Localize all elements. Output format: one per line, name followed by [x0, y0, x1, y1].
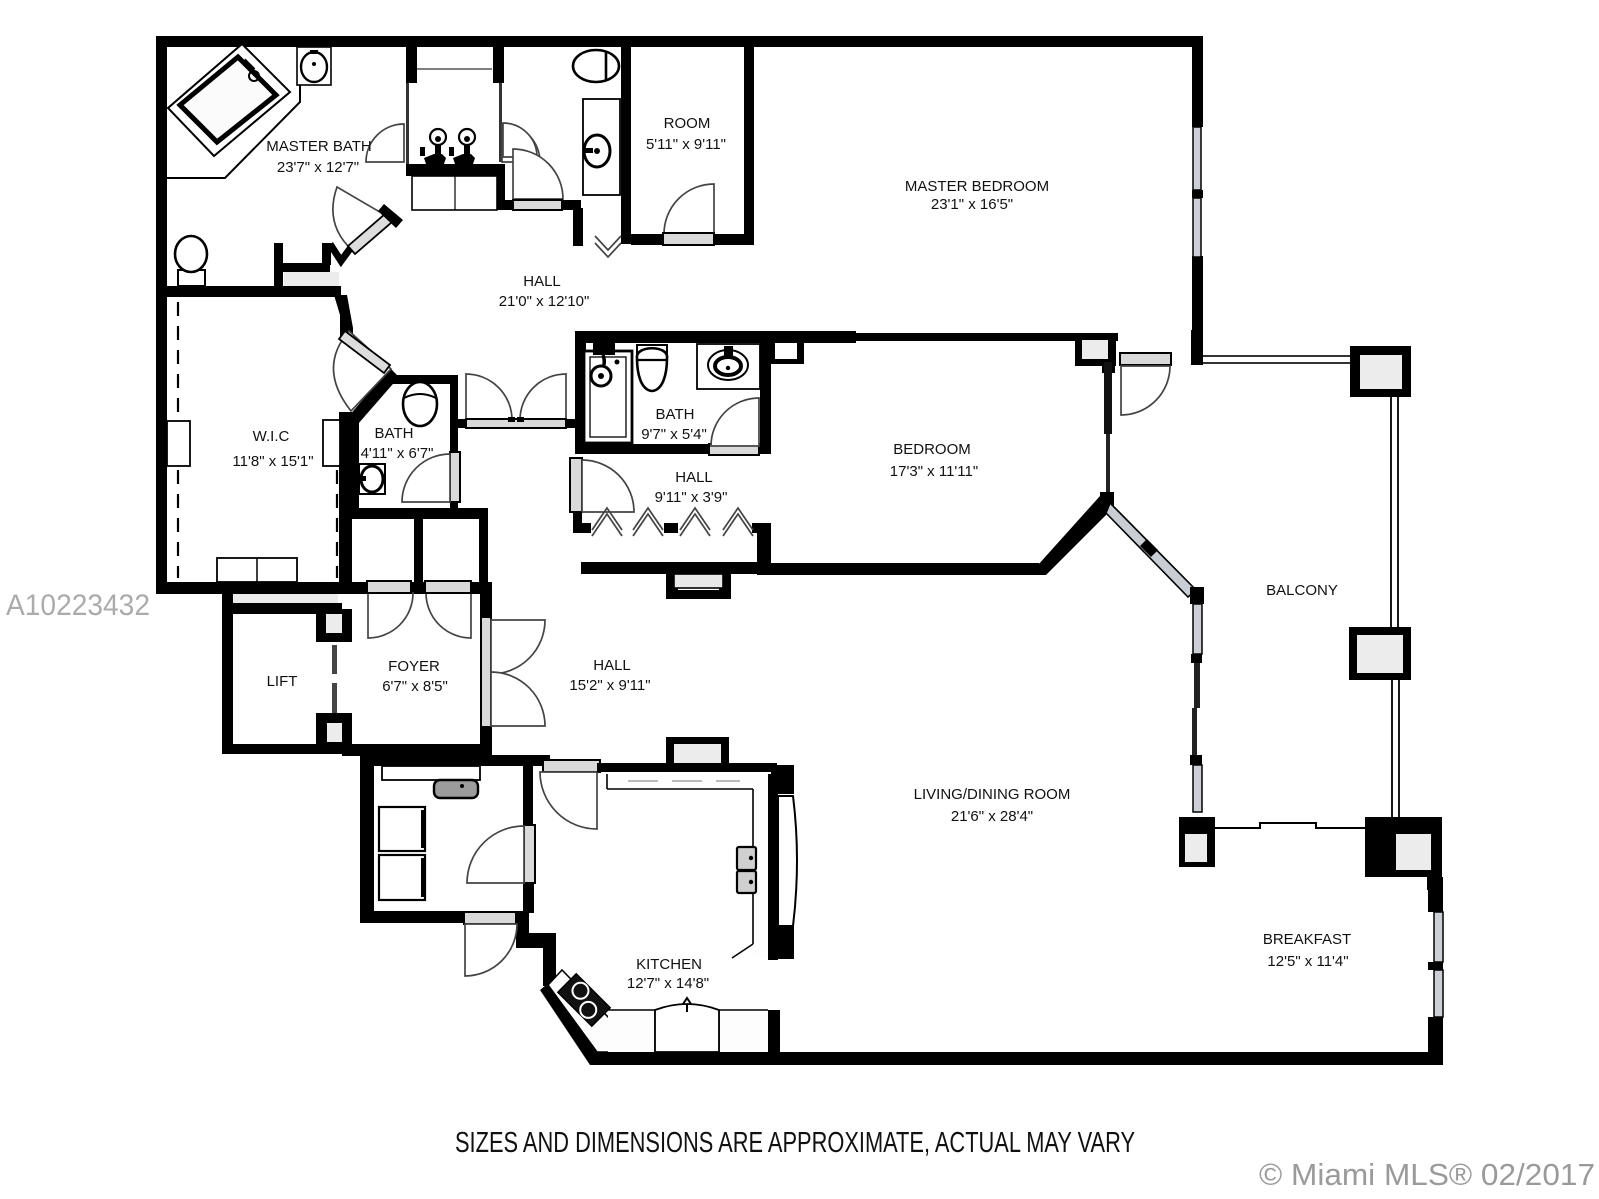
svg-text:BEDROOM: BEDROOM — [893, 441, 971, 458]
svg-text:W.I.C: W.I.C — [253, 428, 290, 445]
svg-text:9'11" x 3'9": 9'11" x 3'9" — [655, 489, 728, 506]
svg-text:BATH: BATH — [375, 425, 414, 442]
svg-text:12'5" x 11'4": 12'5" x 11'4" — [1267, 953, 1348, 970]
svg-text:BALCONY: BALCONY — [1266, 582, 1338, 599]
svg-text:5'11" x 9'11": 5'11" x 9'11" — [646, 136, 726, 153]
svg-text:MASTER BEDROOM: MASTER BEDROOM — [905, 178, 1049, 195]
svg-text:BREAKFAST: BREAKFAST — [1263, 931, 1351, 948]
svg-text:MASTER BATH: MASTER BATH — [266, 138, 372, 155]
svg-text:6'7" x 8'5": 6'7" x 8'5" — [382, 678, 448, 695]
svg-text:HALL: HALL — [593, 657, 631, 674]
svg-text:15'2" x 9'11": 15'2" x 9'11" — [569, 677, 650, 694]
svg-text:© Miami MLS® 02/2017: © Miami MLS® 02/2017 — [1259, 1157, 1595, 1192]
svg-text:9'7" x 5'4": 9'7" x 5'4" — [641, 426, 707, 443]
svg-text:HALL: HALL — [675, 469, 713, 486]
svg-text:11'8" x 15'1": 11'8" x 15'1" — [232, 453, 313, 470]
svg-text:SIZES AND DIMENSIONS ARE APPRO: SIZES AND DIMENSIONS ARE APPROXIMATE, AC… — [455, 1127, 1135, 1159]
svg-text:4'11" x 6'7": 4'11" x 6'7" — [361, 445, 434, 462]
svg-text:LIVING/DINING ROOM: LIVING/DINING ROOM — [914, 786, 1071, 803]
svg-text:12'7" x 14'8": 12'7" x 14'8" — [627, 975, 709, 992]
svg-text:23'7" x 12'7": 23'7" x 12'7" — [277, 159, 359, 176]
svg-text:FOYER: FOYER — [388, 658, 440, 675]
svg-text:21'6" x 28'4": 21'6" x 28'4" — [951, 808, 1033, 825]
svg-text:23'1" x 16'5": 23'1" x 16'5" — [931, 196, 1013, 213]
svg-text:ROOM: ROOM — [664, 115, 711, 132]
svg-text:17'3" x 11'11": 17'3" x 11'11" — [890, 463, 978, 480]
svg-text:HALL: HALL — [523, 273, 561, 290]
svg-text:21'0" x 12'10": 21'0" x 12'10" — [499, 293, 590, 310]
svg-text:A10223432: A10223432 — [6, 589, 150, 622]
svg-text:BATH: BATH — [656, 406, 695, 423]
svg-text:KITCHEN: KITCHEN — [636, 956, 702, 973]
svg-text:LIFT: LIFT — [267, 673, 298, 690]
